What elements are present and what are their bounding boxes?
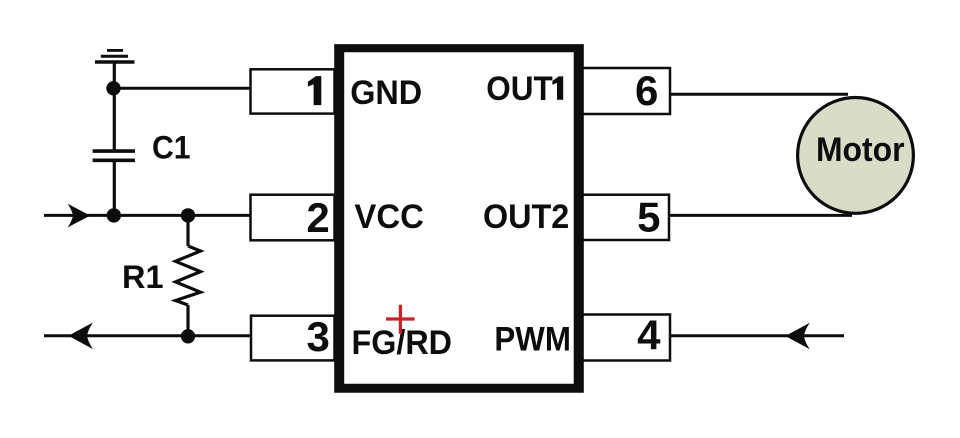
svg-text:GND: GND: [350, 74, 422, 112]
svg-text:OUT2: OUT2: [483, 198, 569, 236]
svg-text:3: 3: [307, 313, 330, 360]
svg-text:5: 5: [637, 194, 660, 241]
svg-text:VCC: VCC: [354, 198, 424, 236]
svg-text:C1: C1: [152, 130, 191, 166]
svg-text:4: 4: [637, 312, 661, 359]
svg-text:2: 2: [306, 194, 329, 241]
svg-text:6: 6: [635, 67, 658, 114]
svg-text:OUT: OUT: [486, 70, 553, 108]
svg-text:R1: R1: [122, 259, 164, 295]
svg-text:Motor: Motor: [816, 131, 905, 169]
svg-text:PWM: PWM: [494, 321, 571, 359]
